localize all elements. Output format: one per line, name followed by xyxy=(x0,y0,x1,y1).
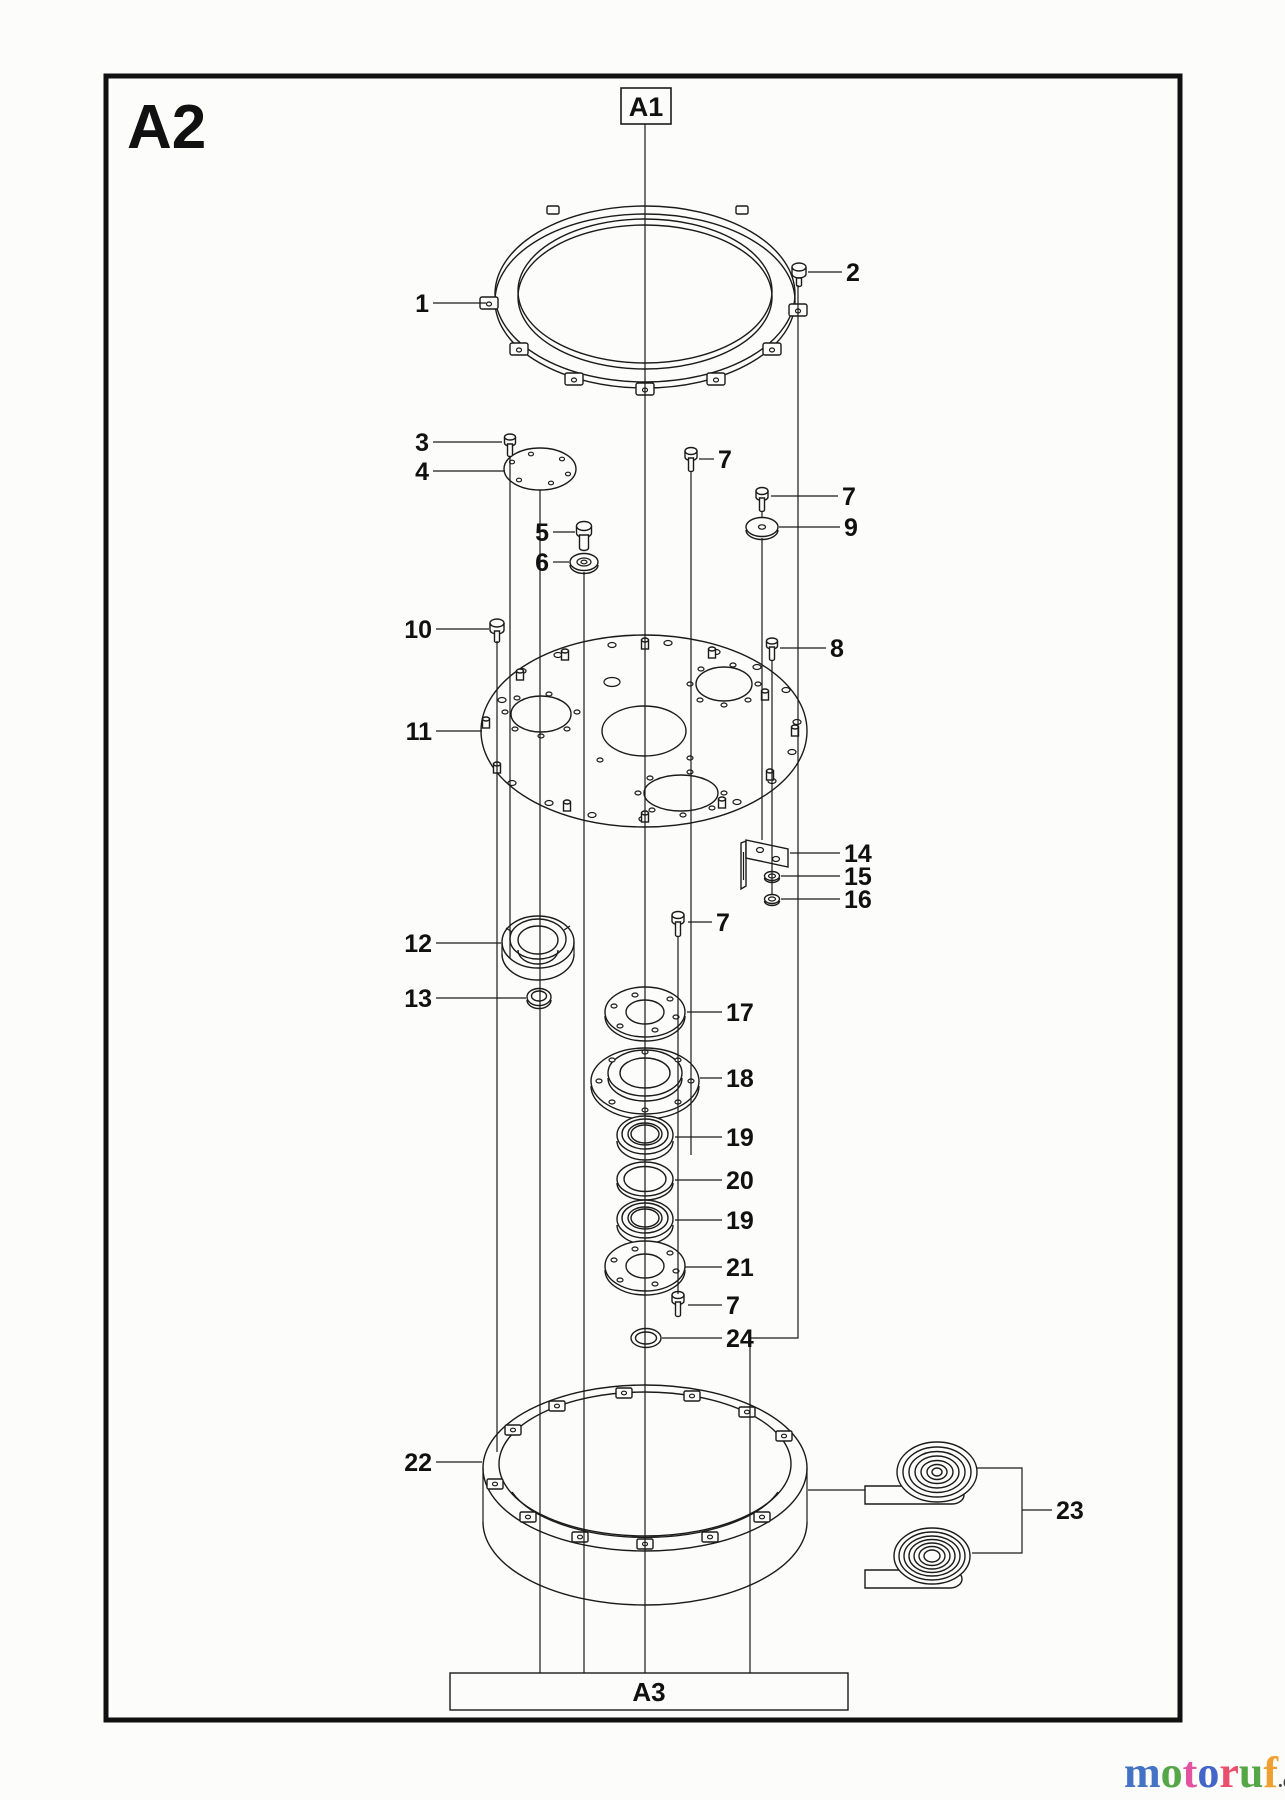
screw-5 xyxy=(577,522,592,551)
logo-letter: o xyxy=(1197,1748,1219,1797)
callout-12: 12 xyxy=(404,930,501,958)
svg-text:7: 7 xyxy=(718,446,732,474)
o-ring-24 xyxy=(631,1329,661,1348)
svg-text:2: 2 xyxy=(846,259,860,287)
callout-13: 13 xyxy=(404,985,526,1013)
parts-diagram-page: A2 xyxy=(0,0,1285,1800)
callout-7b: 7 xyxy=(771,483,856,511)
logo-letter: u xyxy=(1239,1748,1263,1797)
screw-7c xyxy=(672,912,684,937)
callout-5: 5 xyxy=(535,519,575,547)
callout-19b: 19 xyxy=(675,1207,754,1235)
svg-text:24: 24 xyxy=(726,1325,754,1353)
washer-6 xyxy=(570,554,598,574)
brand-logo[interactable]: motoruf.de xyxy=(1124,1748,1285,1797)
seal-strip-23b xyxy=(865,1528,970,1588)
svg-text:8: 8 xyxy=(830,635,844,663)
callout-2: 2 xyxy=(808,259,860,287)
callout-24: 24 xyxy=(662,1325,754,1353)
cover-plate-4 xyxy=(504,448,576,490)
svg-text:13: 13 xyxy=(404,985,432,1013)
callout-8: 8 xyxy=(780,635,844,663)
bracket-14 xyxy=(741,840,788,889)
callout-23: 23 xyxy=(972,1468,1084,1553)
svg-text:17: 17 xyxy=(726,999,754,1027)
logo-letter: t xyxy=(1183,1748,1198,1797)
svg-text:19: 19 xyxy=(726,1124,754,1152)
mounting-plate-11 xyxy=(481,635,807,827)
svg-text:7: 7 xyxy=(716,909,730,937)
callout-21: 21 xyxy=(685,1254,754,1282)
callout-3: 3 xyxy=(415,429,502,457)
retaining-ring-13 xyxy=(527,989,551,1009)
callout-22: 22 xyxy=(404,1449,482,1477)
callout-18: 18 xyxy=(700,1065,754,1093)
svg-text:21: 21 xyxy=(726,1254,754,1282)
svg-text:1: 1 xyxy=(415,290,429,318)
svg-text:22: 22 xyxy=(404,1449,432,1477)
svg-text:20: 20 xyxy=(726,1167,754,1195)
callout-19a: 19 xyxy=(675,1124,754,1152)
callout-1: 1 xyxy=(415,290,486,318)
logo-letter: f xyxy=(1263,1748,1279,1797)
screw-7a xyxy=(685,448,697,472)
a1-label: A1 xyxy=(629,92,664,122)
callout-7c: 7 xyxy=(688,909,730,937)
logo-letter: o xyxy=(1161,1748,1183,1797)
callout-7d: 7 xyxy=(688,1292,740,1320)
logo-letter: r xyxy=(1219,1748,1239,1797)
screw-8 xyxy=(767,638,778,661)
callout-11: 11 xyxy=(406,718,482,746)
logo-tld: .de xyxy=(1278,1771,1285,1792)
callout-17: 17 xyxy=(687,999,754,1027)
svg-text:motoruf.de: motoruf.de xyxy=(1124,1748,1285,1797)
callout-6: 6 xyxy=(535,549,569,577)
callout-9: 9 xyxy=(779,514,858,542)
svg-text:19: 19 xyxy=(726,1207,754,1235)
screw-7d xyxy=(672,1292,684,1317)
svg-text:4: 4 xyxy=(415,458,429,486)
svg-text:7: 7 xyxy=(726,1292,740,1320)
callout-16: 16 xyxy=(781,886,872,914)
svg-text:23: 23 xyxy=(1056,1497,1084,1525)
callouts: 1 2 3 4 5 6 7 7 9 10 8 11 14 15 16 7 12 … xyxy=(404,259,1084,1553)
a3-label: A3 xyxy=(632,1677,665,1707)
washer-9 xyxy=(746,518,778,540)
svg-text:6: 6 xyxy=(535,549,549,577)
a1-reference-box: A1 xyxy=(621,88,671,124)
callout-10: 10 xyxy=(404,616,489,644)
screw-7b xyxy=(756,488,768,512)
svg-text:18: 18 xyxy=(726,1065,754,1093)
callout-20: 20 xyxy=(675,1167,754,1195)
svg-text:10: 10 xyxy=(404,616,432,644)
seal-strip-23a xyxy=(808,1442,977,1504)
clamping-ring-1 xyxy=(480,206,807,395)
svg-text:16: 16 xyxy=(844,886,872,914)
callout-7a: 7 xyxy=(699,446,732,474)
bearing-housing-12 xyxy=(502,916,574,980)
screw-3 xyxy=(505,434,516,457)
sheet-label: A2 xyxy=(127,93,206,162)
logo-letter: m xyxy=(1124,1748,1161,1797)
svg-text:7: 7 xyxy=(842,483,856,511)
nut-16 xyxy=(765,895,780,906)
svg-text:12: 12 xyxy=(404,930,432,958)
svg-text:11: 11 xyxy=(406,718,433,746)
svg-text:9: 9 xyxy=(844,514,858,542)
svg-text:3: 3 xyxy=(415,429,429,457)
screw-10 xyxy=(490,619,504,643)
svg-text:5: 5 xyxy=(535,519,549,547)
callout-4: 4 xyxy=(415,458,505,486)
a3-reference-box: A3 xyxy=(450,1673,848,1710)
